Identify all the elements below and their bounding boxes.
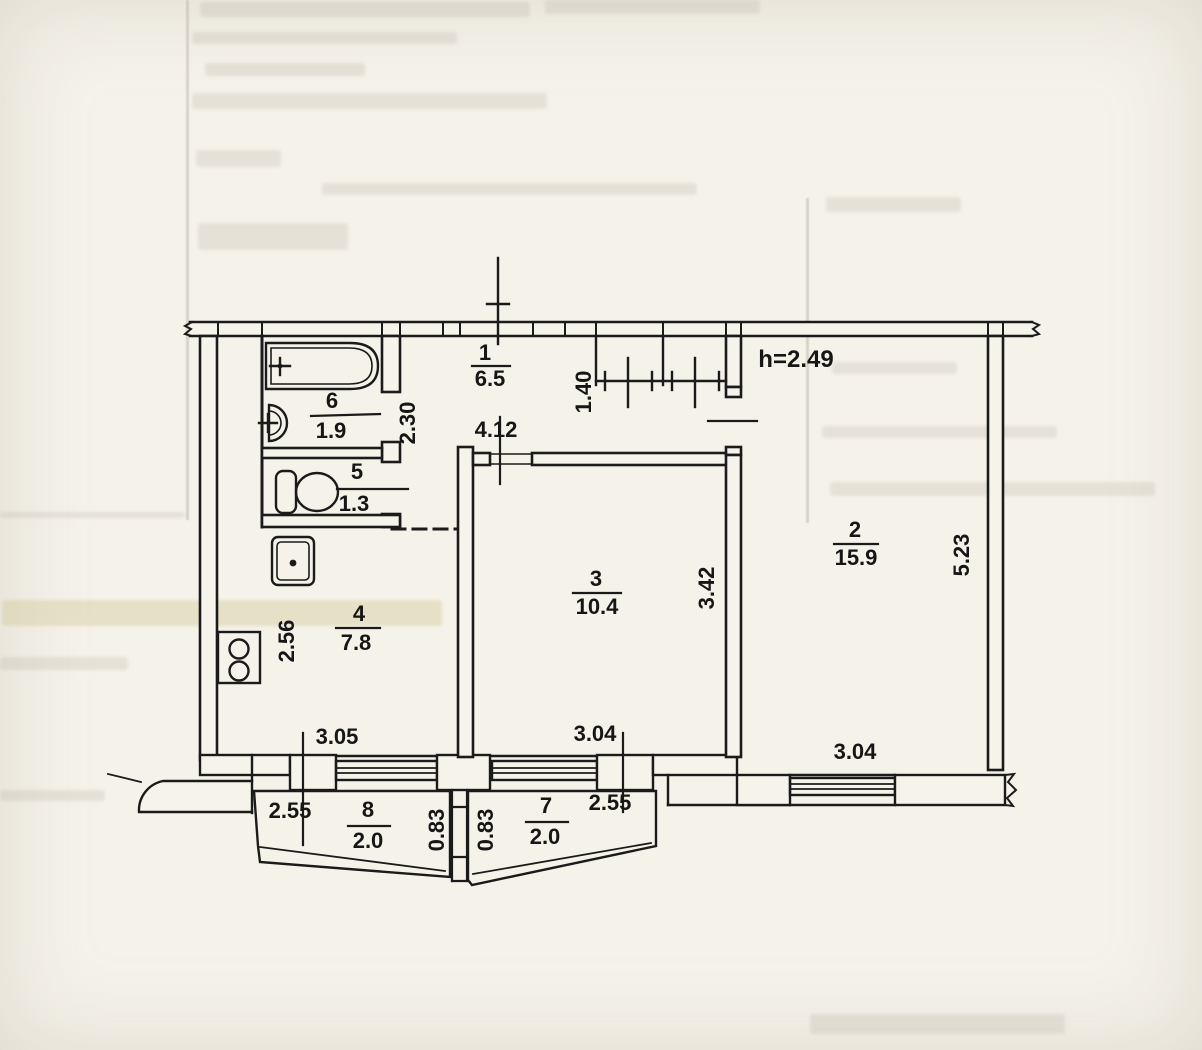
room-1-area: 6.5: [475, 366, 506, 392]
room-4-number: 4: [353, 601, 365, 627]
exterior-right-wall: [988, 336, 1003, 770]
room-8-number: 8: [362, 797, 374, 823]
dim-room2-depth: 5.23: [949, 534, 975, 577]
scanned-floor-plan-page: 1 6.5 2 15.9 3 10.4 4 7.8 5 1.3 6 1.9 7 …: [0, 0, 1202, 1050]
kitchen-walls: [458, 447, 473, 757]
ceiling-height-label: h=2.49: [758, 346, 833, 374]
kitchen-sink-icon: [272, 537, 314, 585]
dim-balcony8-depth: 0.83: [424, 809, 450, 852]
hall-room3-wall: [473, 453, 740, 465]
room-5-area: 1.3: [339, 491, 370, 517]
room-1-number: 1: [479, 340, 491, 366]
room-7-number: 7: [540, 793, 552, 819]
room-3-number: 3: [590, 566, 602, 592]
dim-balcony7-depth: 0.83: [473, 809, 499, 852]
dim-balcony8-width: 2.55: [269, 798, 312, 824]
dim-room3-depth: 3.42: [694, 567, 720, 610]
balcony-center-pier: [452, 790, 467, 881]
room-6-area: 1.9: [316, 418, 347, 444]
dim-bath-depth: 2.30: [395, 402, 421, 445]
room-2-area: 15.9: [835, 545, 878, 571]
dim-kitchen-window: 3.05: [316, 724, 359, 750]
dim-room3-window: 3.04: [574, 721, 617, 747]
dim-balcony7-width: 2.55: [589, 790, 632, 816]
room2-left-wall: [708, 336, 757, 757]
built-in-wardrobe-icon: [596, 336, 726, 407]
exterior-left-wall: [200, 336, 217, 760]
toilet-icon: [276, 471, 338, 513]
room-3-area: 10.4: [576, 594, 619, 620]
floor-plan-drawing: [0, 0, 1202, 1050]
stove-icon: [218, 632, 260, 683]
exterior-top-wall: [185, 322, 1039, 336]
dim-hall-length: 4.12: [475, 417, 518, 443]
room2-window: [790, 778, 895, 795]
room3-window: [492, 761, 597, 780]
bathtub-icon: [266, 343, 378, 389]
room-5-number: 5: [351, 459, 363, 485]
room-4-area: 7.8: [341, 630, 372, 656]
room-6-number: 6: [326, 388, 338, 414]
room-7-area: 2.0: [530, 824, 561, 850]
room-2-number: 2: [849, 517, 861, 543]
dim-kitchen-depth: 2.56: [274, 620, 300, 663]
dim-closet-depth: 1.40: [571, 371, 597, 414]
room-8-area: 2.0: [353, 828, 384, 854]
kitchen-window: [336, 761, 437, 780]
dim-room2-window: 3.04: [834, 739, 877, 765]
